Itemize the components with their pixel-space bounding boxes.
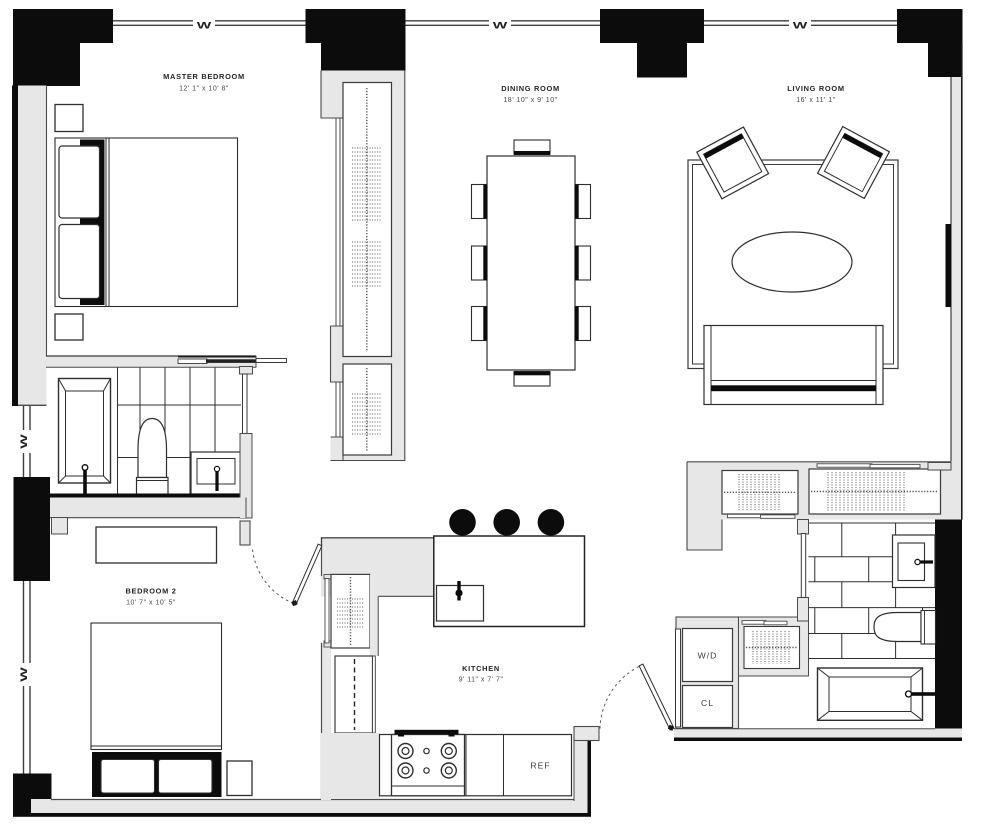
svg-text:REF: REF: [530, 761, 550, 771]
svg-text:9' 11" x 7' 7": 9' 11" x 7' 7": [459, 677, 504, 684]
svg-text:W: W: [19, 667, 30, 682]
svg-text:LIVING ROOM: LIVING ROOM: [787, 84, 844, 93]
svg-text:12' 1" x 10' 8": 12' 1" x 10' 8": [179, 86, 229, 93]
svg-text:16' x 11' 1": 16' x 11' 1": [796, 97, 835, 104]
svg-text:10' 7" x 10' 5": 10' 7" x 10' 5": [126, 600, 176, 607]
svg-text:W: W: [493, 21, 508, 32]
svg-text:CL: CL: [701, 698, 714, 708]
svg-text:W: W: [197, 21, 212, 32]
svg-text:W/D: W/D: [698, 651, 718, 661]
svg-text:DINING ROOM: DINING ROOM: [501, 84, 560, 93]
svg-text:W: W: [793, 21, 808, 32]
svg-text:MASTER BEDROOM: MASTER BEDROOM: [163, 72, 245, 81]
svg-text:BEDROOM 2: BEDROOM 2: [125, 587, 176, 596]
svg-text:W: W: [19, 434, 30, 449]
svg-text:18' 10" x 9' 10": 18' 10" x 9' 10": [503, 97, 557, 104]
svg-text:KITCHEN: KITCHEN: [462, 664, 500, 673]
